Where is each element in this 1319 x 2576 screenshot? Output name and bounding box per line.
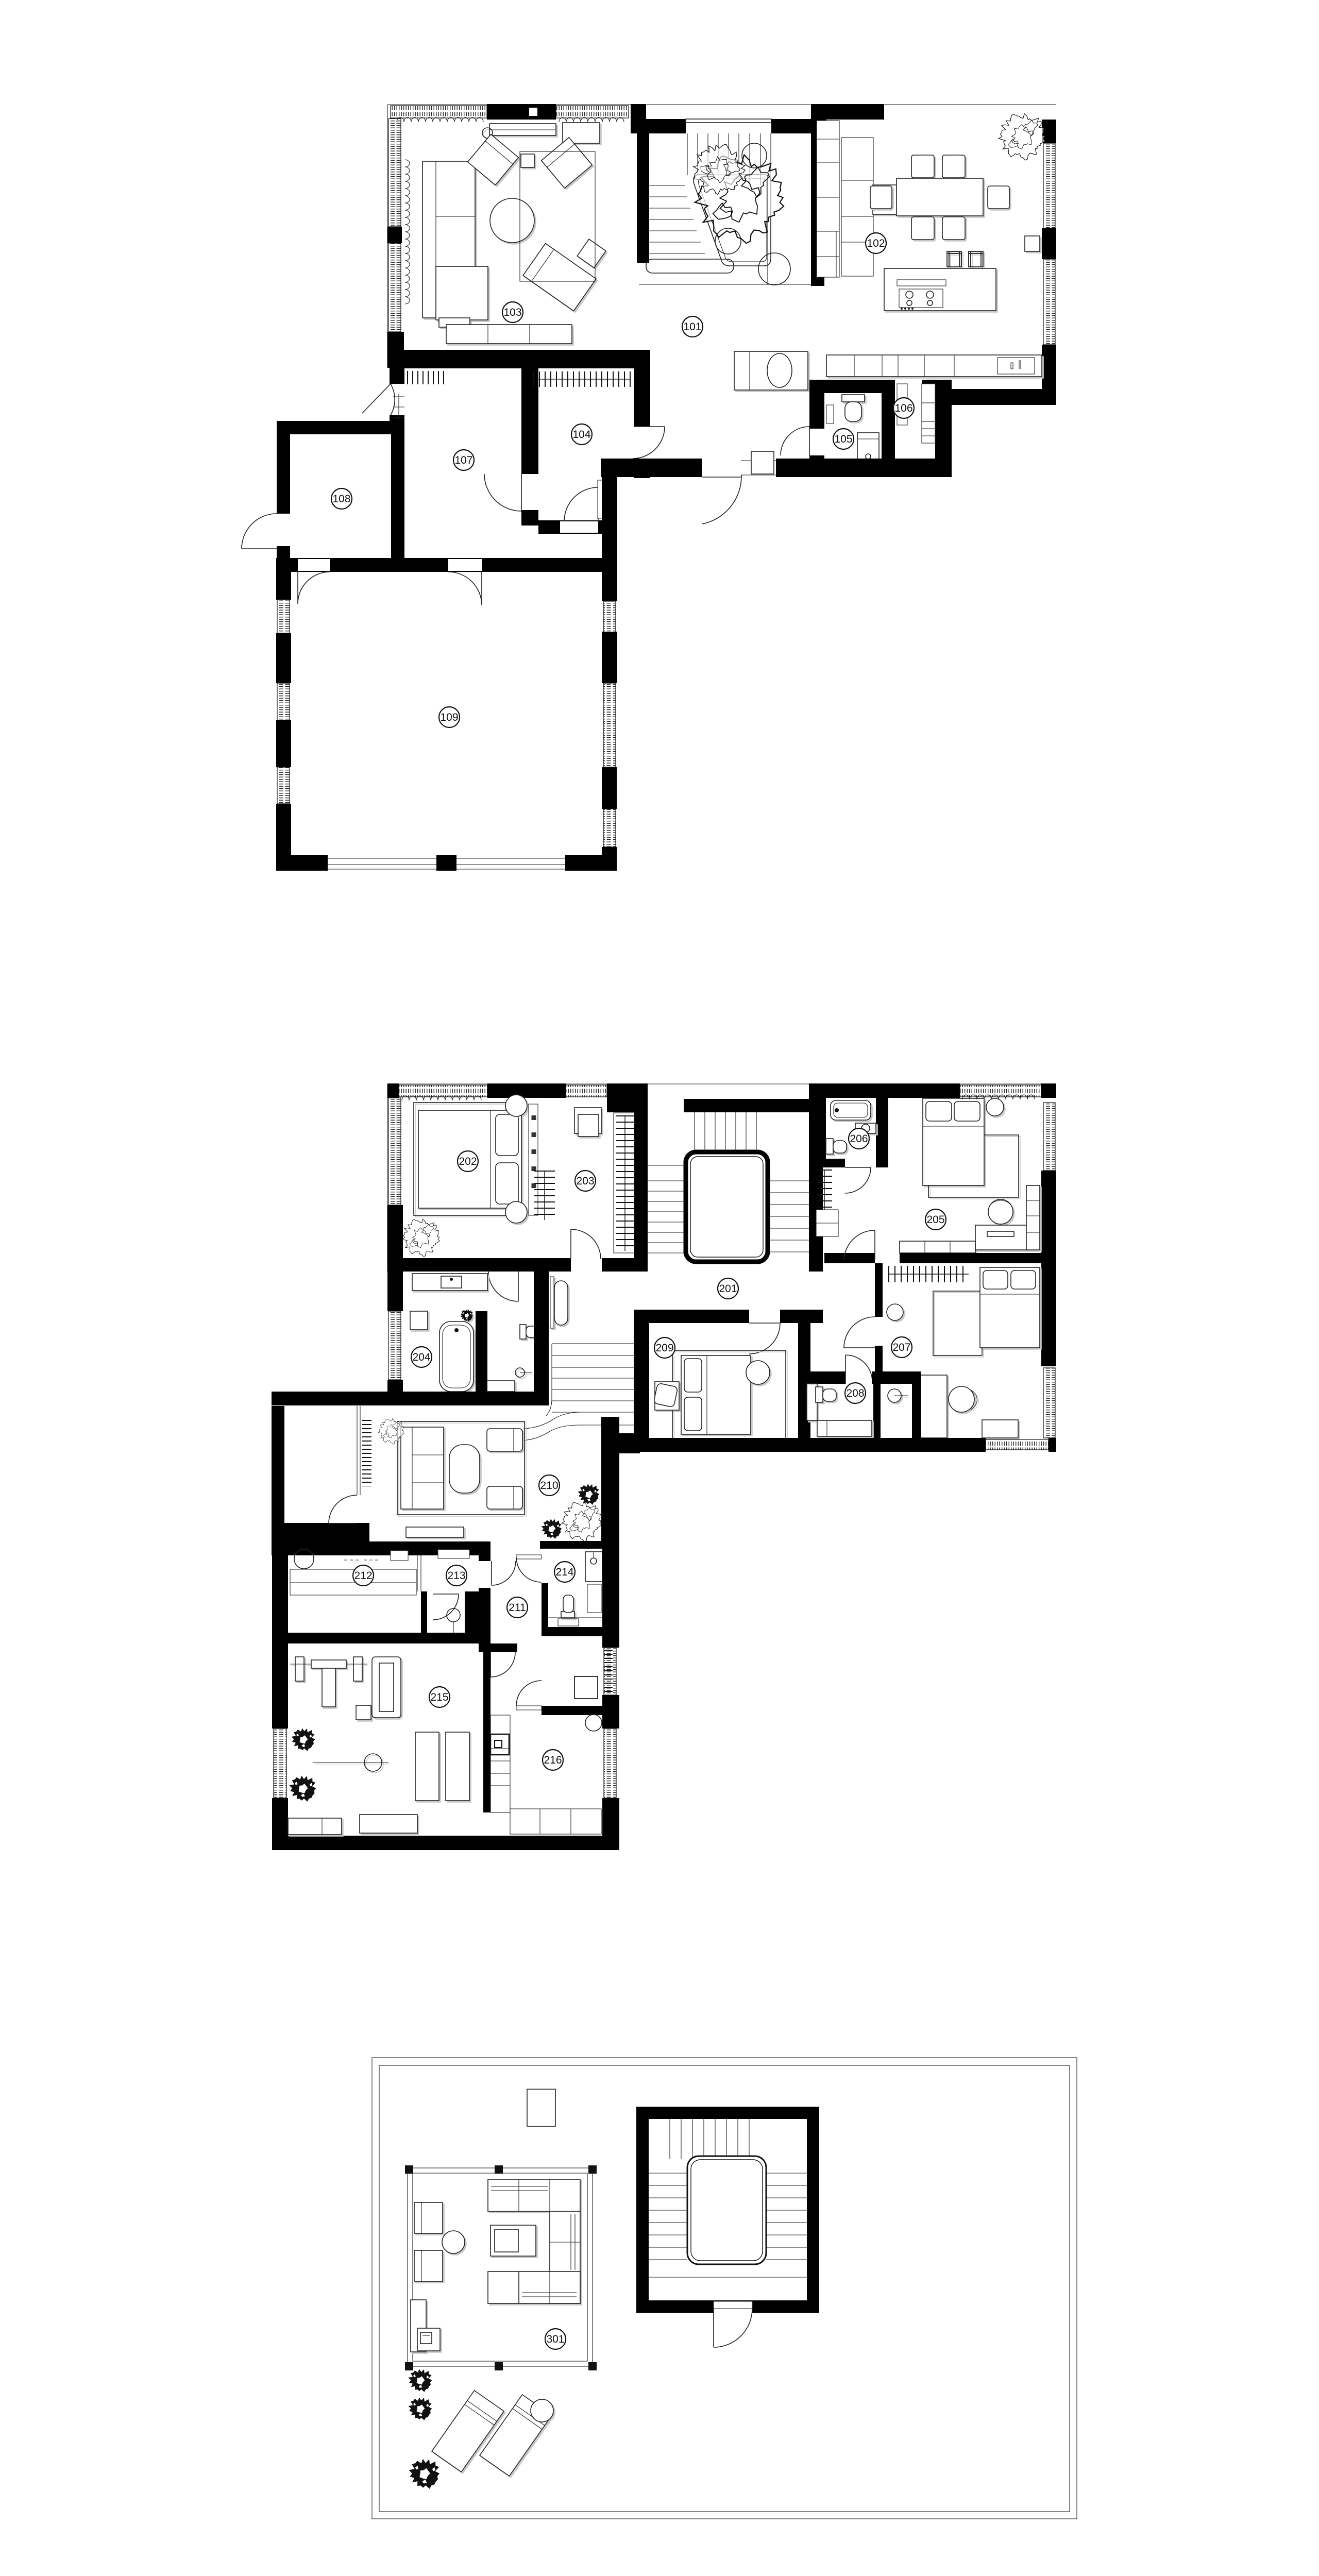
svg-text:301: 301 xyxy=(546,2333,564,2345)
svg-text:101: 101 xyxy=(683,321,701,333)
svg-text:214: 214 xyxy=(555,1566,573,1578)
svg-text:216: 216 xyxy=(544,1754,562,1766)
svg-text:205: 205 xyxy=(926,1214,944,1226)
svg-text:212: 212 xyxy=(354,1570,372,1582)
svg-text:203: 203 xyxy=(576,1175,594,1187)
svg-text:104: 104 xyxy=(572,429,590,440)
svg-text:209: 209 xyxy=(655,1342,673,1354)
svg-text:108: 108 xyxy=(332,493,350,505)
svg-text:211: 211 xyxy=(509,1602,526,1614)
svg-text:106: 106 xyxy=(894,402,912,414)
svg-text:213: 213 xyxy=(447,1570,465,1582)
svg-text:206: 206 xyxy=(850,1133,868,1145)
svg-text:109: 109 xyxy=(440,711,458,723)
svg-text:105: 105 xyxy=(834,433,852,445)
svg-text:102: 102 xyxy=(867,238,885,249)
svg-text:210: 210 xyxy=(540,1480,558,1492)
svg-text:208: 208 xyxy=(846,1387,864,1399)
svg-text:207: 207 xyxy=(892,1342,910,1353)
svg-text:202: 202 xyxy=(459,1156,477,1167)
svg-text:107: 107 xyxy=(454,454,472,466)
svg-text:204: 204 xyxy=(412,1351,430,1363)
svg-text:201: 201 xyxy=(719,1283,737,1295)
svg-text:215: 215 xyxy=(430,1691,448,1703)
svg-text:103: 103 xyxy=(503,307,521,318)
